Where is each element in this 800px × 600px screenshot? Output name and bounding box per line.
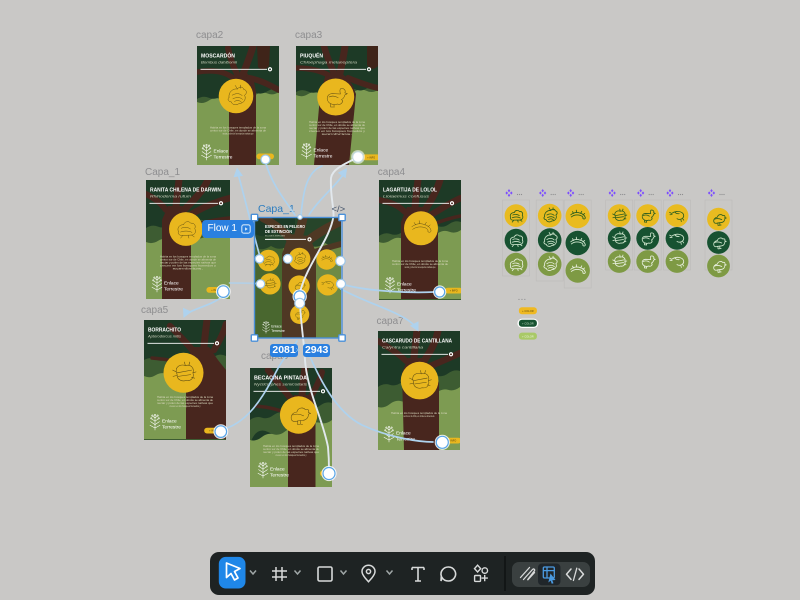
svg-text:+ COLOR: + COLOR [522, 309, 534, 313]
svg-text:+ COLOR: + COLOR [522, 334, 534, 338]
svg-text:+ COLOR: + COLOR [522, 322, 534, 326]
